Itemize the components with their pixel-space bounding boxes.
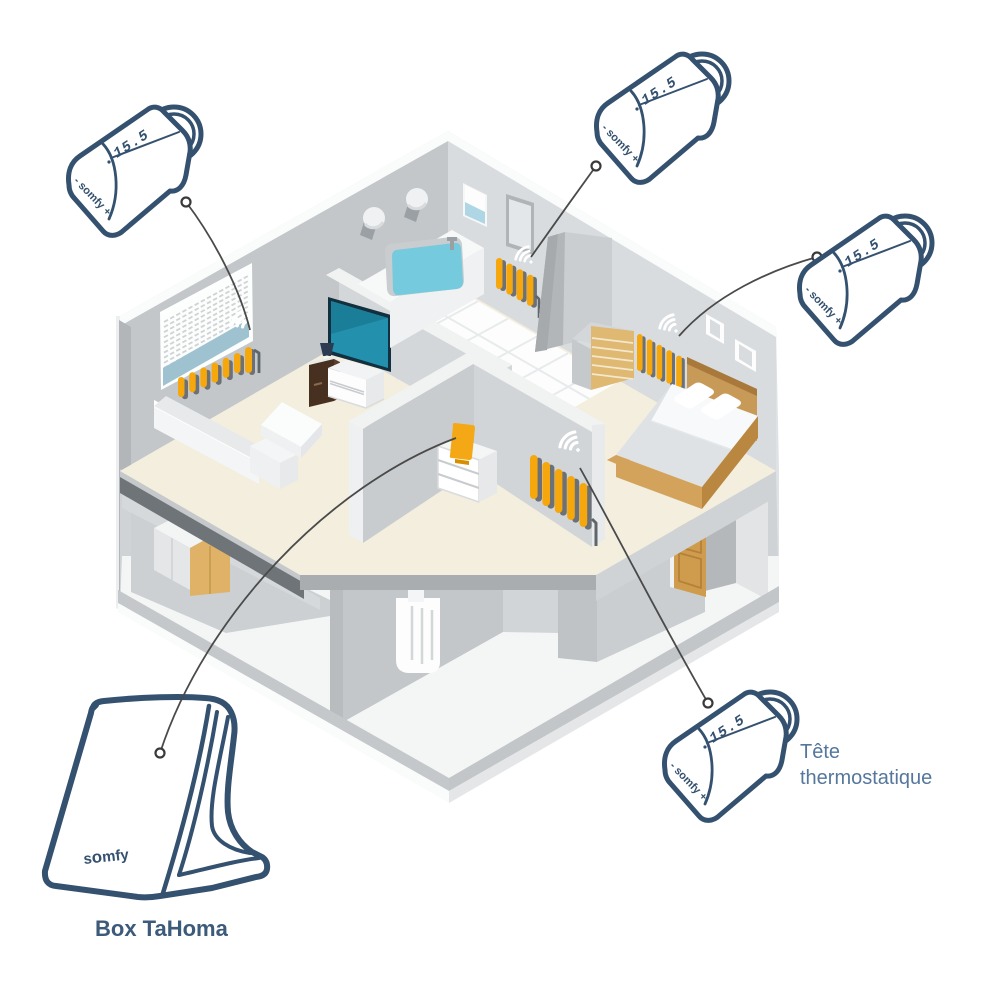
svg-text:Tête: Tête — [800, 741, 840, 763]
svg-text:Box TaHoma: Box TaHoma — [95, 916, 229, 941]
svg-text:thermostatique: thermostatique — [800, 767, 932, 789]
